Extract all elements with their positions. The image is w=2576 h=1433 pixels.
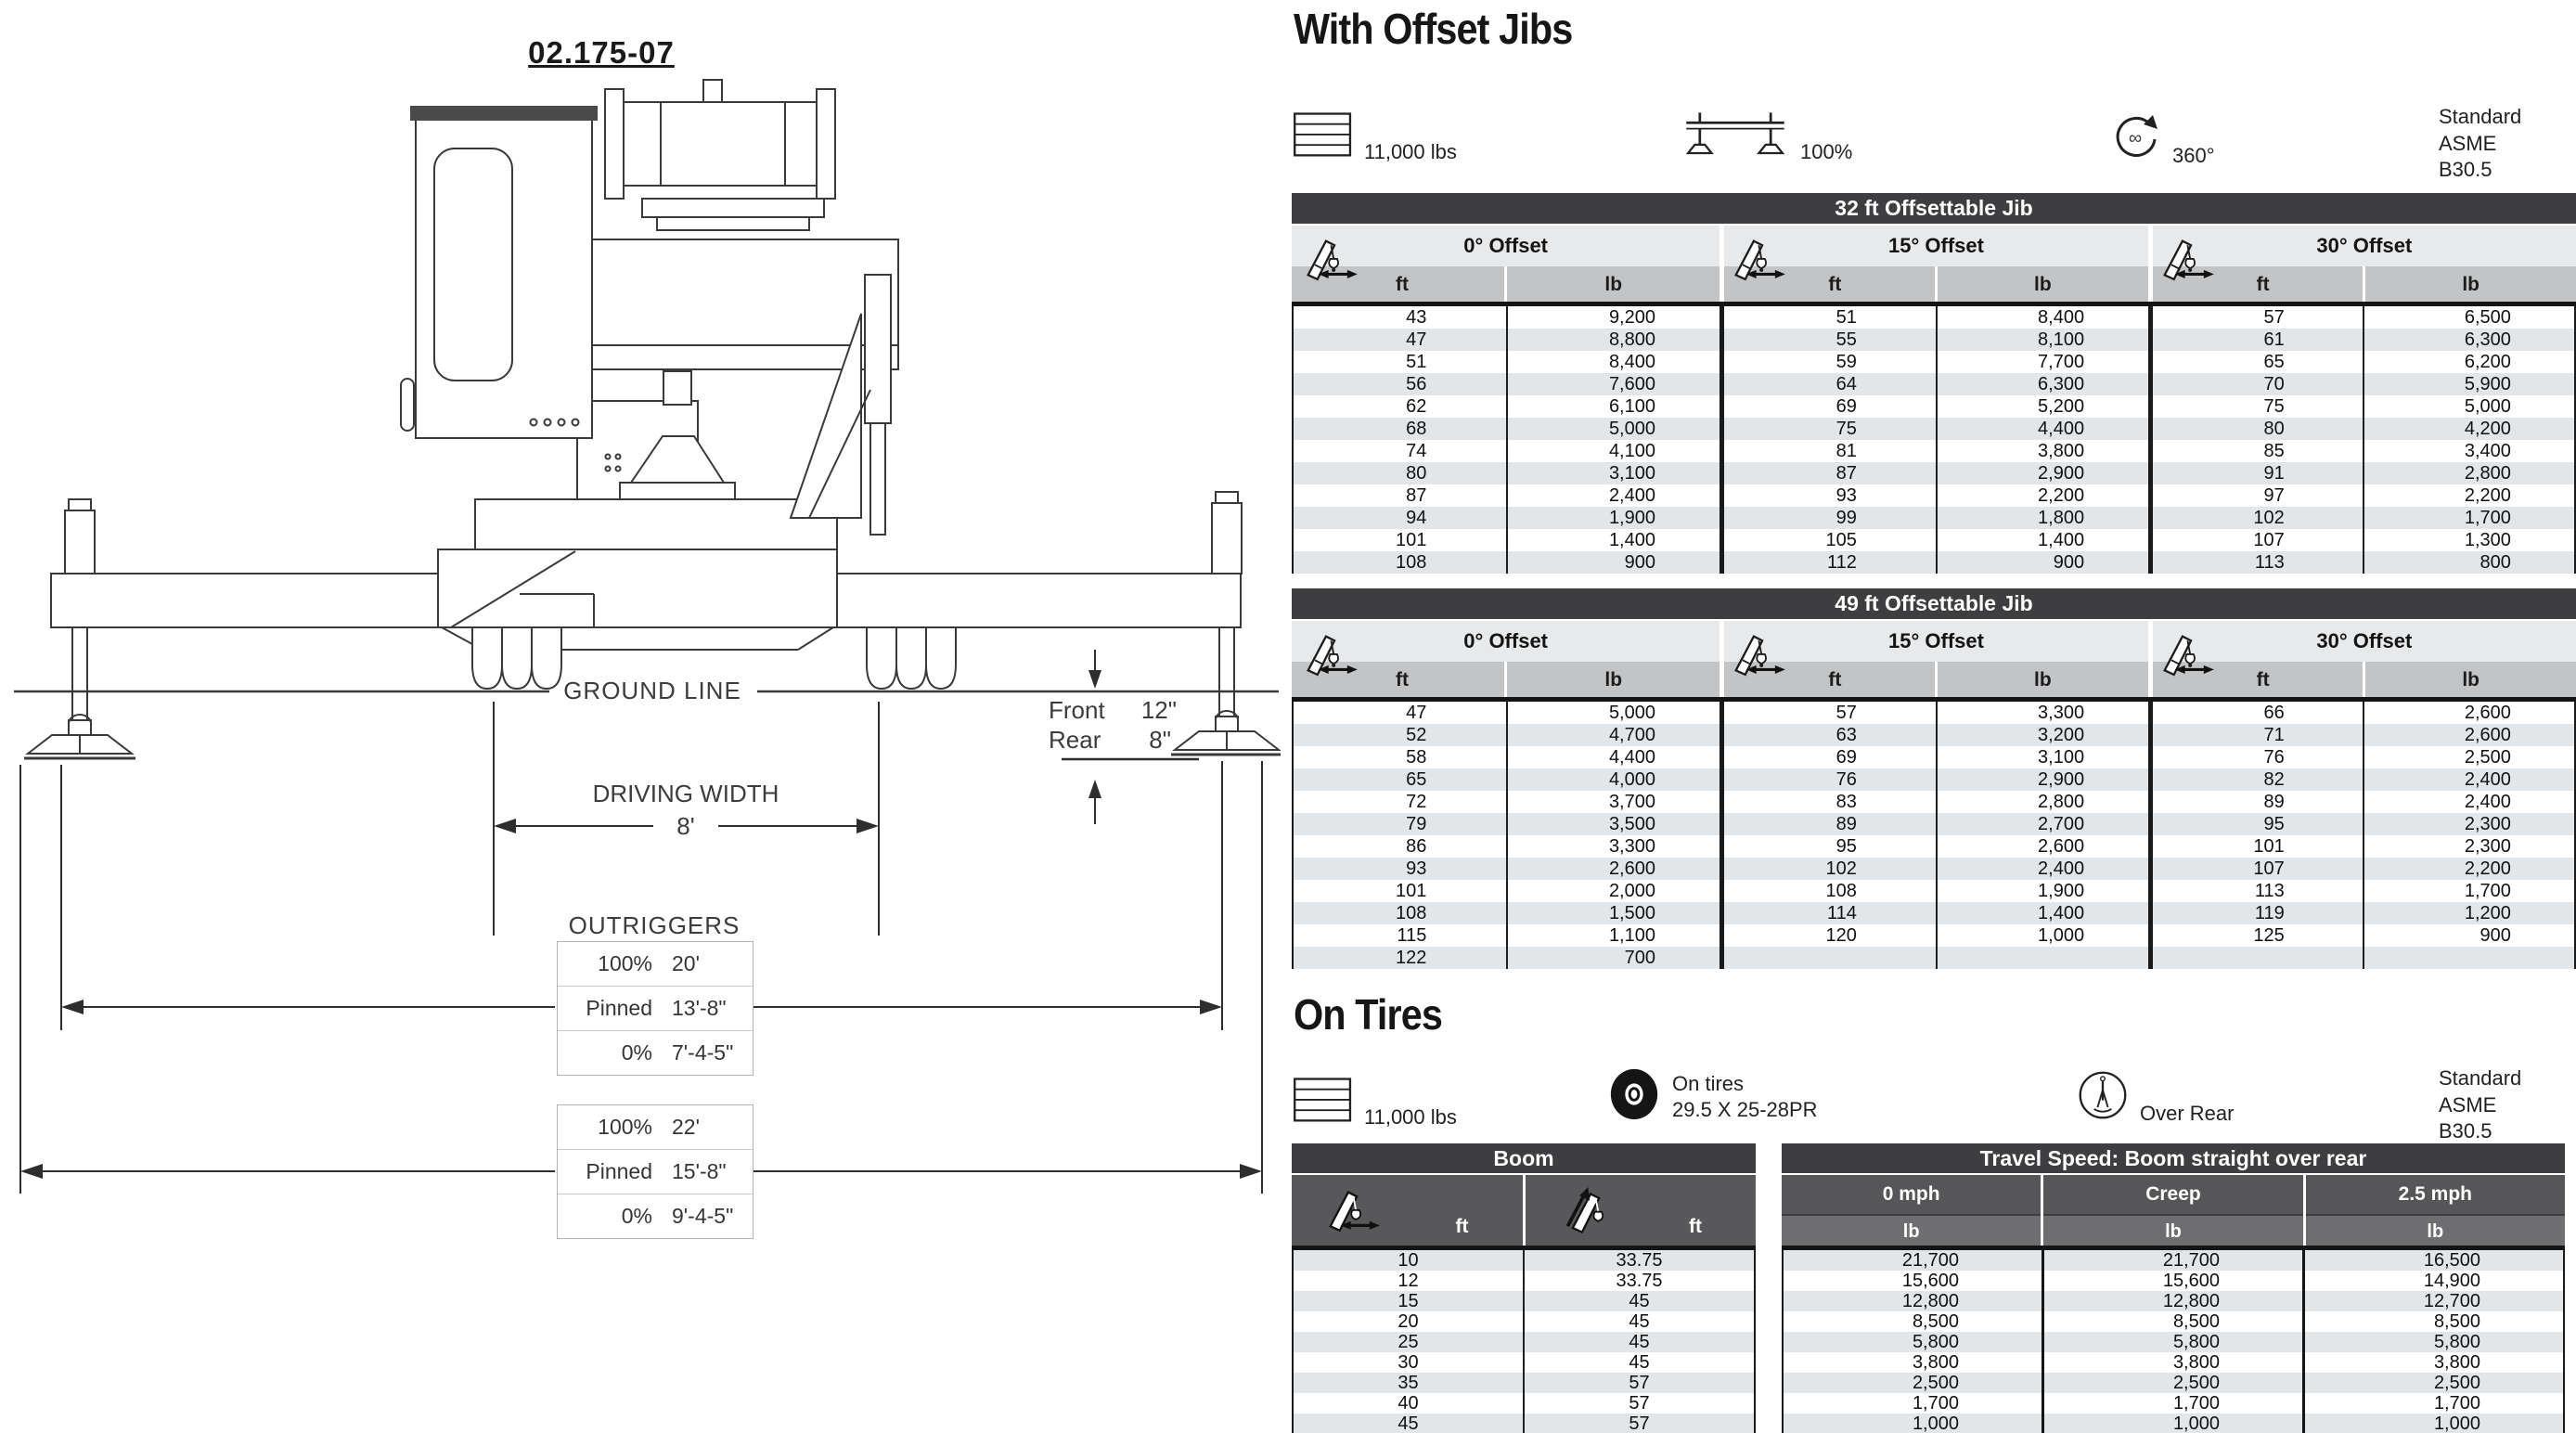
capacity-cell: 6,300 — [1936, 373, 2148, 395]
radius-cell: 82 — [2153, 768, 2363, 791]
capacity-cell: 3,800 — [1936, 440, 2148, 462]
radius-cell: 71 — [2153, 724, 2363, 746]
jib-offset-icon — [1732, 628, 1794, 683]
table-part: 113 — [2231, 881, 2285, 902]
tire-label-line2: 29.5 X 25-28PR — [1672, 1097, 1818, 1123]
radius-cell: 85 — [2153, 440, 2363, 462]
table-part: 5,200 — [2001, 396, 2084, 418]
table-row: 108900 — [1294, 551, 1719, 574]
table-row: 1141,400 — [1724, 902, 2147, 924]
table-row: 754,400 — [1724, 418, 2147, 440]
capacity-cell: 3,800 — [2041, 1352, 2302, 1373]
spread-mode-label: 100% — [558, 951, 664, 976]
capacity-cell: 3,100 — [1936, 746, 2148, 768]
spread-mode-label: 100% — [558, 1115, 664, 1140]
table-row: 656,200 — [2153, 351, 2574, 373]
table-row: 1201,000 — [1724, 924, 2147, 947]
outrigger-spread-row: 100%22' — [558, 1105, 753, 1150]
capacity-cell: 1,700 — [2363, 880, 2574, 902]
table-part: 108 — [1803, 881, 1857, 902]
jib-offset-icon — [1305, 233, 1366, 288]
table-row: 1151,100 — [1294, 924, 1719, 947]
table-part: 1,700 — [2127, 1393, 2220, 1414]
table-part: 95 — [2231, 814, 2285, 835]
radius-cell: 69 — [1724, 746, 1935, 768]
tire-icon — [1607, 1067, 1661, 1126]
table-part: 115 — [1372, 925, 1426, 947]
unit-label: lb — [1782, 1214, 2041, 1246]
table-part: 5,900 — [2428, 374, 2511, 395]
standard-note-2-line1: Standard ASME — [2439, 1065, 2576, 1118]
radius-cell: 57 — [1724, 702, 1935, 724]
table-part: 12,800 — [1866, 1291, 1959, 1312]
radius-cell: 61 — [2153, 329, 2363, 351]
capacity-cell: 800 — [2363, 551, 2574, 574]
table-part: 21,700 — [2127, 1250, 2220, 1272]
radius-cell: 115 — [1294, 924, 1506, 947]
radius-cell: 107 — [2153, 529, 2363, 551]
table-part: 16,500 — [2388, 1250, 2480, 1272]
boom-length-cell: 45 — [1523, 1311, 1754, 1332]
radius-cell: 102 — [1724, 858, 1935, 880]
radius-cell: 64 — [1724, 373, 1935, 395]
table-row: 112900 — [1724, 551, 2147, 574]
table-row: 122700 — [1294, 947, 1719, 969]
capacity-cell: 8,500 — [1784, 1311, 2041, 1332]
table-part: 2,400 — [1572, 485, 1655, 507]
capacity-cell: 2,400 — [1936, 858, 2148, 880]
table-part: 2,800 — [2001, 792, 2084, 813]
capacity-cell: 900 — [2363, 924, 2574, 947]
table-part: 8,400 — [2001, 307, 2084, 329]
jib-groups: 0° Offsetftlb475,000524,700584,400654,00… — [1292, 621, 2576, 969]
radius-cell: 108 — [1724, 880, 1935, 902]
capacity-cell: 1,700 — [2302, 1393, 2563, 1414]
table-part: 95 — [1803, 836, 1857, 858]
table-row: 872,900 — [1724, 462, 2147, 484]
table-part: 1,000 — [2127, 1414, 2220, 1433]
table-row: 5,8005,8005,800 — [1784, 1332, 2563, 1352]
table-row: 695,200 — [1724, 395, 2147, 418]
lb-header-label: lb — [1507, 274, 1719, 296]
capacity-cell: 21,700 — [1784, 1250, 2041, 1271]
table-row: 3045 — [1294, 1352, 1754, 1373]
capacity-cell: 15,600 — [2041, 1271, 2302, 1291]
radius-cell: 51 — [1294, 351, 1506, 373]
table-part: 800 — [2428, 552, 2511, 574]
table-row: 584,400 — [1294, 746, 1719, 768]
radius-cell: 59 — [1724, 351, 1935, 373]
table-row: 755,000 — [2153, 395, 2574, 418]
table-row: 2,5002,5002,500 — [1784, 1373, 2563, 1393]
boom-radius-cell: 45 — [1294, 1414, 1523, 1433]
table-row — [2153, 947, 2574, 969]
capacity-cell: 2,600 — [1506, 858, 1720, 880]
capacity-column-header: lb — [1938, 662, 2148, 697]
table-part: 1,800 — [2001, 508, 2084, 529]
table-part: 3,500 — [1572, 814, 1655, 835]
radius-cell: 83 — [1724, 791, 1935, 813]
jib-table-32ft: 32 ft Offsettable Jib0° Offsetftlb439,20… — [1292, 193, 2576, 574]
table-row: 762,500 — [2153, 746, 2574, 768]
table-part: 2,600 — [1572, 859, 1655, 880]
load-tables-panel: With Offset Jibs 11,000 lbs 100% ∞ 360° … — [1281, 0, 2576, 1433]
table-row: 2545 — [1294, 1332, 1754, 1352]
radius-cell: 89 — [1724, 813, 1935, 835]
radius-cell: 43 — [1294, 306, 1506, 329]
boom-length-cell: 33.75 — [1523, 1271, 1754, 1291]
swing-label: 360° — [2172, 143, 2215, 169]
boom-radius-column-header: ft — [1292, 1175, 1523, 1246]
radius-cell: 76 — [2153, 746, 2363, 768]
table-part: 2,600 — [2428, 725, 2511, 746]
capacity-cell: 1,000 — [2041, 1414, 2302, 1433]
counterweight-badge-2: 11,000 lbs — [1292, 1073, 1457, 1130]
capacity-cell: 2,600 — [2363, 724, 2574, 746]
table-part: 81 — [1803, 441, 1857, 462]
table-part: 8,400 — [1572, 352, 1655, 373]
radius-cell: 122 — [1294, 947, 1506, 969]
driving-width-label: DRIVING WIDTH — [593, 780, 779, 807]
table-part: 57 — [1803, 703, 1857, 724]
radius-cell: 70 — [2153, 373, 2363, 395]
driving-width-value: 8' — [676, 812, 694, 840]
radius-cell: 89 — [2153, 791, 2363, 813]
table-part: 93 — [1372, 859, 1426, 880]
radius-cell: 86 — [1294, 835, 1506, 858]
table-part: 65 — [2231, 352, 2285, 373]
table-part: 3,200 — [2001, 725, 2084, 746]
svg-text:∞: ∞ — [2129, 128, 2142, 148]
table-part: 4,200 — [2428, 419, 2511, 440]
capacity-cell: 6,100 — [1506, 395, 1720, 418]
table-row: 576,500 — [2153, 306, 2574, 329]
capacity-cell: 7,700 — [1936, 351, 2148, 373]
table-row: 633,200 — [1724, 724, 2147, 746]
unit-label: lb — [2043, 1214, 2302, 1246]
table-part: 1,700 — [2428, 881, 2511, 902]
counterweight-badge: 11,000 lbs — [1292, 108, 1457, 164]
table-part: 105 — [1803, 530, 1857, 551]
table-part: 3,800 — [2127, 1352, 2220, 1374]
table-row: 744,100 — [1294, 440, 1719, 462]
table-row: 952,600 — [1724, 835, 2147, 858]
table-part: 97 — [2231, 485, 2285, 507]
radius-cell: 101 — [1294, 880, 1506, 902]
table-part: 15,600 — [2127, 1271, 2220, 1292]
table-part: 101 — [1372, 881, 1426, 902]
table-part: 900 — [1572, 552, 1655, 574]
radius-cell: 114 — [1724, 902, 1935, 924]
table-part: 3,700 — [1572, 792, 1655, 813]
ft-header-label: ft — [2257, 669, 2270, 691]
capacity-cell: 1,000 — [1936, 924, 2148, 947]
table-part: 21,700 — [1866, 1250, 1959, 1272]
spread-value: 22' — [664, 1115, 753, 1140]
outrigger-badge: 100% — [1680, 110, 1852, 164]
table-row: 4057 — [1294, 1393, 1754, 1414]
table-part: 3,300 — [1572, 836, 1655, 858]
capacity-cell: 8,400 — [1936, 306, 2148, 329]
offset-group: 0° Offsetftlb475,000524,700584,400654,00… — [1292, 621, 1719, 969]
radius-cell: 113 — [2153, 880, 2363, 902]
capacity-cell: 2,500 — [2302, 1373, 2563, 1393]
boom-length-cell: 57 — [1523, 1373, 1754, 1393]
table-row: 1033.75 — [1294, 1250, 1754, 1271]
radius-cell: 99 — [1724, 507, 1935, 529]
outrigger-spread-row: 0%7'-4-5" — [558, 1031, 753, 1075]
radius-cell: 101 — [1294, 529, 1506, 551]
table-part: 87 — [1803, 463, 1857, 484]
table-row: 685,000 — [1294, 418, 1719, 440]
boom-radius-cell: 12 — [1294, 1271, 1523, 1291]
outrigger-spread-row: 100%20' — [558, 942, 753, 987]
capacity-cell: 5,900 — [2363, 373, 2574, 395]
radius-cell: 65 — [2153, 351, 2363, 373]
over-rear-icon — [2077, 1069, 2129, 1126]
speed-column-header: Creep — [2043, 1175, 2302, 1214]
boom-table-body: 1033.751233.7515452045254530453557405745… — [1292, 1250, 1756, 1433]
table-part: 14,900 — [2388, 1271, 2480, 1292]
capacity-cell: 1,400 — [1506, 529, 1720, 551]
capacity-cell: 8,100 — [1936, 329, 2148, 351]
speed-column-header: 2.5 mph — [2306, 1175, 2565, 1214]
table-part: 2,200 — [2428, 859, 2511, 880]
table-part: 2,700 — [2001, 814, 2084, 835]
table-row: 1072,200 — [2153, 858, 2574, 880]
capacity-cell: 3,300 — [1506, 835, 1720, 858]
capacity-cell — [1936, 947, 2148, 969]
table-part: 1,700 — [2388, 1393, 2480, 1414]
table-part: 1,300 — [2428, 530, 2511, 551]
table-part: 2,900 — [2001, 463, 2084, 484]
table-part: 1,400 — [2001, 903, 2084, 924]
table-part: 6,300 — [2428, 329, 2511, 351]
table-part: 1,400 — [2001, 530, 2084, 551]
table-part: 6,100 — [1572, 396, 1655, 418]
table-part: 108 — [1372, 552, 1426, 574]
capacity-cell: 2,200 — [1936, 484, 2148, 507]
capacity-column-header: lb — [2365, 266, 2576, 302]
offset-group-label: 15° Offset — [1888, 629, 1984, 653]
table-row: 21,70021,70016,500 — [1784, 1250, 2563, 1271]
table-part: 2,600 — [2001, 836, 2084, 858]
table-part: 2,400 — [2428, 769, 2511, 791]
on-tires-heading: On Tires — [1294, 989, 1442, 1039]
table-part: 1,100 — [1572, 925, 1655, 947]
table-part: 2,300 — [2428, 814, 2511, 835]
offset-group-body: 518,400558,100597,700646,300695,200754,4… — [1719, 306, 2147, 574]
table-row: 863,300 — [1294, 835, 1719, 858]
table-row: 1131,700 — [2153, 880, 2574, 902]
table-part: 72 — [1372, 792, 1426, 813]
boom-length-cell: 45 — [1523, 1352, 1754, 1373]
table-part: 3,100 — [2001, 747, 2084, 768]
table-row: 1545 — [1294, 1291, 1754, 1311]
radius-cell: 66 — [2153, 702, 2363, 724]
table-row: 723,700 — [1294, 791, 1719, 813]
table-part: 75 — [2231, 396, 2285, 418]
capacity-cell: 2,900 — [1936, 768, 2148, 791]
table-row: 932,200 — [1724, 484, 2147, 507]
table-part: 2,300 — [2428, 836, 2511, 858]
capacity-cell: 21,700 — [2041, 1250, 2302, 1271]
spread-value: 13'-8" — [664, 996, 753, 1021]
table-part: 7,600 — [1572, 374, 1655, 395]
table-part: 3,400 — [2428, 441, 2511, 462]
table-row: 475,000 — [1294, 702, 1719, 724]
outriggers-label: OUTRIGGERS — [569, 911, 741, 939]
boom-length-cell: 45 — [1523, 1332, 1754, 1352]
capacity-cell: 5,000 — [1506, 702, 1720, 724]
offset-group-body: 576,500616,300656,200705,900755,000804,2… — [2148, 306, 2576, 574]
capacity-cell: 2,400 — [2363, 768, 2574, 791]
table-part: 12,800 — [2127, 1291, 2220, 1312]
boom-table-title: Boom — [1292, 1143, 1756, 1173]
ft-header-label: ft — [1828, 669, 1841, 691]
radius-cell: 57 — [2153, 306, 2363, 329]
radius-cell: 107 — [2153, 858, 2363, 880]
table-part: 2,200 — [2001, 485, 2084, 507]
radius-cell: 93 — [1724, 484, 1935, 507]
table-part: 3,800 — [2001, 441, 2084, 462]
table-row: 616,300 — [2153, 329, 2574, 351]
radius-cell: 80 — [1294, 462, 1506, 484]
table-row: 793,500 — [1294, 813, 1719, 835]
radius-cell: 47 — [1294, 702, 1506, 724]
table-part: 89 — [2231, 792, 2285, 813]
table-part: 1,500 — [1572, 903, 1655, 924]
capacity-cell: 7,600 — [1506, 373, 1720, 395]
table-part: 5,800 — [1866, 1332, 1959, 1353]
table-row: 597,700 — [1724, 351, 2147, 373]
table-row: 1,0001,0001,000 — [1784, 1414, 2563, 1433]
table-part: 64 — [1803, 374, 1857, 395]
table-row: 1012,300 — [2153, 835, 2574, 858]
table-row: 3,8003,8003,800 — [1784, 1352, 2563, 1373]
table-part: 3,800 — [2388, 1352, 2480, 1374]
capacity-column-header: lb — [1507, 662, 1719, 697]
lb-header-label: lb — [1938, 669, 2148, 691]
capacity-cell: 1,900 — [1936, 880, 2148, 902]
boom-icon-band: ftft — [1292, 1175, 1756, 1246]
table-row: 941,900 — [1294, 507, 1719, 529]
table-part: 125 — [2231, 925, 2285, 947]
capacity-cell: 6,300 — [2363, 329, 2574, 351]
offset-group-label: 15° Offset — [1888, 234, 1984, 258]
table-part: 2,500 — [2127, 1373, 2220, 1394]
capacity-cell: 4,100 — [1506, 440, 1720, 462]
capacity-cell: 2,300 — [2363, 835, 2574, 858]
front-clearance-value: 12" — [1141, 696, 1177, 724]
outrigger-spread-row: Pinned13'-8" — [558, 987, 753, 1031]
capacity-cell: 12,800 — [1784, 1291, 2041, 1311]
jib-groups: 0° Offsetftlb439,200478,800518,400567,60… — [1292, 226, 2576, 574]
table-part: 2,500 — [1866, 1373, 1959, 1394]
table-part: 114 — [1803, 903, 1857, 924]
table-part: 5,000 — [1572, 419, 1655, 440]
ft-header-label: ft — [1396, 669, 1409, 691]
table-part: 68 — [1372, 419, 1426, 440]
table-row: 822,400 — [2153, 768, 2574, 791]
table-part: 62 — [1372, 396, 1426, 418]
table-part: 79 — [1372, 814, 1426, 835]
capacity-cell: 2,700 — [1936, 813, 2148, 835]
capacity-cell: 3,800 — [1784, 1352, 2041, 1373]
capacity-cell: 1,800 — [1936, 507, 2148, 529]
counterweight-icon — [1292, 108, 1355, 164]
capacity-cell: 1,100 — [1506, 924, 1720, 947]
capacity-cell: 2,600 — [1936, 835, 2148, 858]
table-part: 89 — [1803, 814, 1857, 835]
table-part: 1,200 — [2428, 903, 2511, 924]
offset-group: 15° Offsetftlb573,300633,200693,100762,9… — [1719, 621, 2147, 969]
offset-group: 30° Offsetftlb662,600712,600762,500822,4… — [2148, 621, 2576, 969]
radius-cell: 56 — [1294, 373, 1506, 395]
capacity-cell: 2,400 — [2363, 791, 2574, 813]
table-part: 4,100 — [1572, 441, 1655, 462]
table-part: 1,900 — [1572, 508, 1655, 529]
table-row: 1021,700 — [2153, 507, 2574, 529]
lb-header-label: lb — [2365, 274, 2576, 296]
radius-cell: 119 — [2153, 902, 2363, 924]
capacity-column-header: lb — [1507, 266, 1719, 302]
capacity-cell: 6,500 — [2363, 306, 2574, 329]
capacity-cell: 1,000 — [1784, 1414, 2041, 1433]
table-row: 932,600 — [1294, 858, 1719, 880]
table-part: 119 — [2231, 903, 2285, 924]
table-row — [1724, 947, 2147, 969]
boom-radius-cell: 30 — [1294, 1352, 1523, 1373]
radius-cell: 87 — [1724, 462, 1935, 484]
table-part: 8,100 — [2001, 329, 2084, 351]
radius-cell: 108 — [1294, 551, 1506, 574]
boom-length-cell: 57 — [1523, 1393, 1754, 1414]
table-part: 6,200 — [2428, 352, 2511, 373]
table-part: 1,900 — [2001, 881, 2084, 902]
boom-radius-cell: 35 — [1294, 1373, 1523, 1393]
ft-header-label: ft — [1828, 274, 1841, 296]
capacity-cell: 2,800 — [2363, 462, 2574, 484]
table-part: 58 — [1372, 747, 1426, 768]
table-row: 892,400 — [2153, 791, 2574, 813]
ft-header-label: ft — [1396, 274, 1409, 296]
table-part: 56 — [1372, 374, 1426, 395]
table-row: 952,300 — [2153, 813, 2574, 835]
table-part: 5,800 — [2388, 1332, 2480, 1353]
travel-table-title: Travel Speed: Boom straight over rear — [1782, 1143, 2565, 1173]
table-row: 626,100 — [1294, 395, 1719, 418]
offset-group-body: 662,600712,600762,500822,400892,400952,3… — [2148, 702, 2576, 969]
table-row: 804,200 — [2153, 418, 2574, 440]
table-part: 75 — [1803, 419, 1857, 440]
radius-cell: 52 — [1294, 724, 1506, 746]
unit-label: lb — [2306, 1214, 2565, 1246]
table-part: 69 — [1803, 396, 1857, 418]
travel-speed-table: Travel Speed: Boom straight over rear0 m… — [1782, 1143, 2565, 1433]
capacity-cell: 1,200 — [2363, 902, 2574, 924]
radius-cell: 97 — [2153, 484, 2363, 507]
capacity-cell: 8,400 — [1506, 351, 1720, 373]
radius-cell: 112 — [1724, 551, 1935, 574]
capacity-cell: 2,300 — [2363, 813, 2574, 835]
table-part: 5,000 — [1572, 703, 1655, 724]
capacity-cell: 4,400 — [1936, 418, 2148, 440]
table-row: 1233.75 — [1294, 1271, 1754, 1291]
table-row: 693,100 — [1724, 746, 2147, 768]
radius-cell: 68 — [1294, 418, 1506, 440]
capacity-cell: 700 — [1506, 947, 1720, 969]
